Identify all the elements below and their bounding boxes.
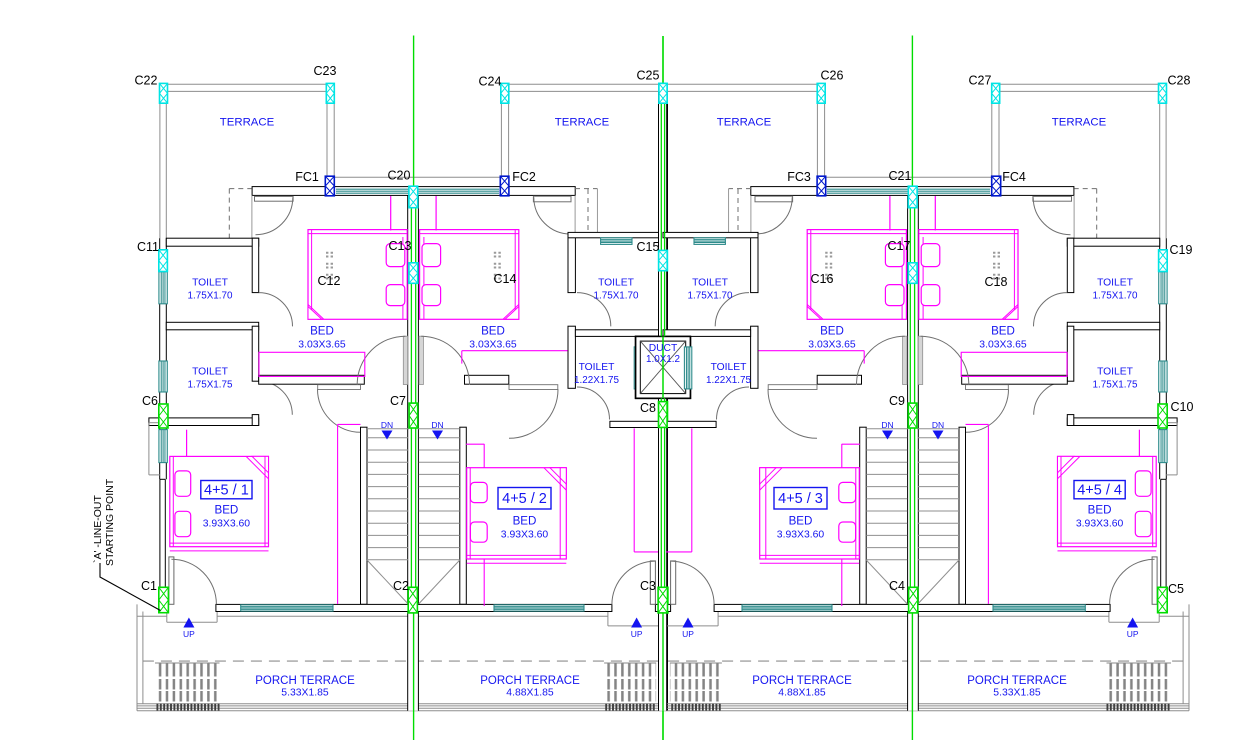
svg-text:C22: C22: [135, 74, 158, 88]
svg-text:BED: BED: [1088, 504, 1112, 517]
svg-text:DN: DN: [932, 420, 944, 430]
svg-text:C18: C18: [985, 275, 1008, 289]
svg-text:BED: BED: [789, 515, 813, 528]
svg-text:TOILET: TOILET: [579, 362, 616, 373]
svg-text:C5: C5: [1168, 582, 1184, 596]
svg-text:5.33X1.85: 5.33X1.85: [281, 688, 329, 699]
svg-text:C1: C1: [141, 579, 157, 593]
svg-text:BED: BED: [481, 325, 505, 338]
svg-text:1.75X1.75: 1.75X1.75: [187, 379, 233, 390]
svg-text:BED: BED: [991, 325, 1015, 338]
svg-text:C25: C25: [637, 69, 660, 83]
svg-text:3.03X3.65: 3.03X3.65: [979, 339, 1027, 350]
svg-text:C16: C16: [811, 272, 834, 286]
svg-text:BED: BED: [214, 504, 238, 517]
svg-text:3.03X3.65: 3.03X3.65: [808, 339, 856, 350]
svg-text:3.93X3.60: 3.93X3.60: [777, 530, 825, 541]
svg-text:UP: UP: [1127, 629, 1139, 639]
svg-text:4+5 / 2: 4+5 / 2: [502, 491, 547, 507]
svg-text:TOILET: TOILET: [711, 362, 748, 373]
svg-text:C6: C6: [142, 394, 158, 408]
svg-text:1.75X1.70: 1.75X1.70: [593, 290, 639, 301]
svg-text:1.75X1.70: 1.75X1.70: [687, 290, 733, 301]
svg-text:3.93X3.60: 3.93X3.60: [1076, 519, 1124, 530]
svg-text:1.0X1.2: 1.0X1.2: [646, 354, 680, 365]
svg-text:DN: DN: [431, 420, 443, 430]
svg-text:C23: C23: [314, 64, 337, 78]
svg-text:4+5 / 3: 4+5 / 3: [778, 491, 823, 507]
svg-text:1.75X1.75: 1.75X1.75: [1092, 379, 1138, 390]
svg-text:C8: C8: [640, 401, 656, 415]
svg-text:C2: C2: [393, 579, 409, 593]
svg-text:C4: C4: [889, 579, 905, 593]
svg-text:C10: C10: [1171, 400, 1194, 414]
svg-text:C14: C14: [494, 272, 517, 286]
svg-text:DUCT: DUCT: [649, 343, 678, 354]
svg-text:TOILET: TOILET: [1097, 367, 1134, 378]
svg-text:1.75X1.70: 1.75X1.70: [187, 290, 233, 301]
svg-text:DN: DN: [881, 420, 893, 430]
svg-text:4.88X1.85: 4.88X1.85: [778, 688, 826, 699]
svg-text:C21: C21: [889, 169, 912, 183]
svg-text:BED: BED: [820, 325, 844, 338]
svg-text:TOILET: TOILET: [1097, 278, 1134, 289]
svg-text:1.22X1.75: 1.22X1.75: [574, 375, 620, 386]
svg-text:1.75X1.70: 1.75X1.70: [1092, 290, 1138, 301]
svg-text:UP: UP: [682, 629, 694, 639]
svg-text:TERRACE: TERRACE: [717, 117, 772, 129]
svg-text:C7: C7: [390, 394, 406, 408]
svg-text:BED: BED: [513, 515, 537, 528]
svg-text:3.03X3.65: 3.03X3.65: [298, 339, 346, 350]
svg-text:`A' -LINE-OUT: `A' -LINE-OUT: [92, 494, 104, 563]
svg-text:TOILET: TOILET: [692, 278, 729, 289]
svg-text:FC2: FC2: [512, 170, 536, 184]
svg-text:TERRACE: TERRACE: [220, 117, 275, 129]
svg-text:3.03X3.65: 3.03X3.65: [469, 339, 517, 350]
svg-text:TERRACE: TERRACE: [555, 117, 610, 129]
svg-text:C28: C28: [1168, 74, 1191, 88]
svg-text:4+5 / 4: 4+5 / 4: [1077, 483, 1122, 499]
svg-text:TERRACE: TERRACE: [1052, 117, 1107, 129]
svg-text:BED: BED: [310, 325, 334, 338]
svg-text:PORCH TERRACE: PORCH TERRACE: [967, 675, 1067, 687]
svg-text:C27: C27: [969, 74, 992, 88]
svg-text:5.33X1.85: 5.33X1.85: [993, 688, 1041, 699]
svg-text:C9: C9: [889, 394, 905, 408]
svg-text:C12: C12: [318, 274, 341, 288]
svg-text:FC4: FC4: [1002, 170, 1026, 184]
svg-text:FC3: FC3: [787, 170, 811, 184]
svg-text:PORCH TERRACE: PORCH TERRACE: [752, 675, 852, 687]
svg-text:C11: C11: [137, 240, 159, 254]
svg-text:TOILET: TOILET: [598, 278, 635, 289]
svg-text:3.93X3.60: 3.93X3.60: [203, 519, 251, 530]
svg-text:PORCH TERRACE: PORCH TERRACE: [480, 675, 580, 687]
svg-text:UP: UP: [183, 629, 195, 639]
svg-text:C24: C24: [479, 75, 502, 89]
svg-text:C19: C19: [1170, 243, 1193, 257]
svg-text:C17: C17: [888, 239, 911, 253]
svg-text:FC1: FC1: [295, 170, 319, 184]
svg-text:3.93X3.60: 3.93X3.60: [501, 530, 549, 541]
svg-text:C20: C20: [388, 169, 411, 183]
svg-text:4.88X1.85: 4.88X1.85: [506, 688, 554, 699]
svg-text:DN: DN: [381, 420, 393, 430]
svg-text:C15: C15: [637, 240, 660, 254]
svg-text:TOILET: TOILET: [192, 278, 229, 289]
svg-text:C26: C26: [821, 69, 844, 83]
svg-text:TOILET: TOILET: [192, 367, 229, 378]
svg-text:C13: C13: [389, 239, 412, 253]
svg-text:PORCH TERRACE: PORCH TERRACE: [255, 675, 355, 687]
svg-text:UP: UP: [631, 629, 643, 639]
svg-text:1.22X1.75: 1.22X1.75: [706, 375, 752, 386]
svg-text:C3: C3: [640, 579, 656, 593]
svg-text:STARTING POINT: STARTING POINT: [104, 478, 116, 566]
svg-text:4+5 / 1: 4+5 / 1: [204, 483, 249, 499]
